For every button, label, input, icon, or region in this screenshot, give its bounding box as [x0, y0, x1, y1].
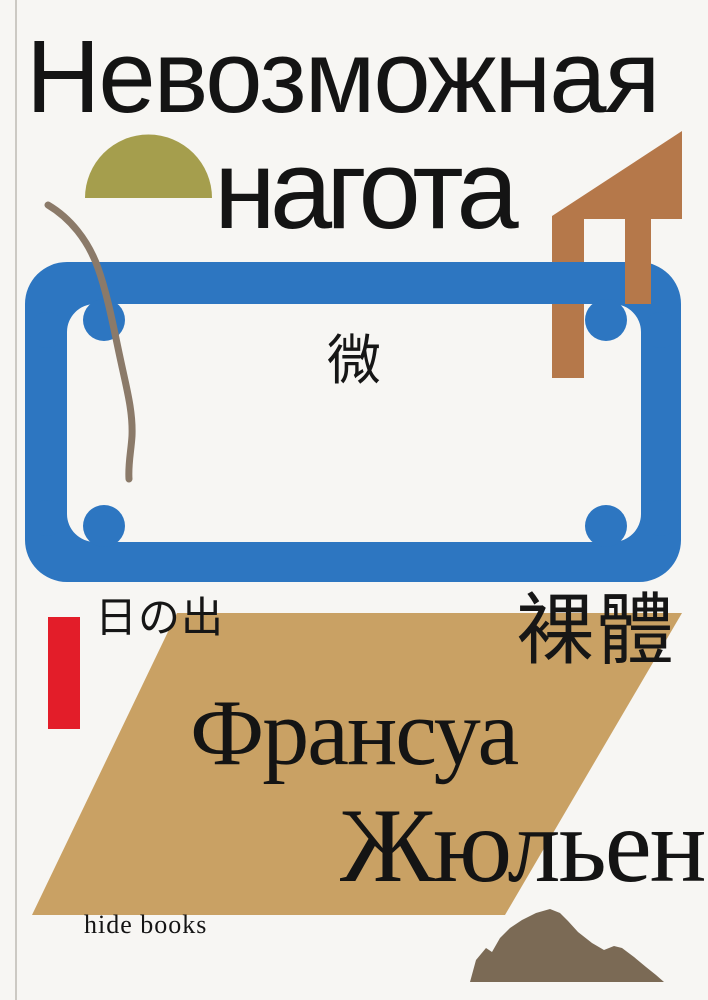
author-first-name: Франсуа — [190, 686, 517, 780]
book-cover: Невозможная нагота 微 日の出 裸體 Франсуа Жюль… — [0, 0, 708, 1000]
mountain-icon — [470, 909, 664, 982]
cjk-character-center: 微 — [327, 334, 381, 388]
title-line1: Невозможная — [26, 25, 658, 128]
cjk-text-sunrise: 日の出 — [95, 597, 224, 639]
author-last-name: Жюльен — [340, 793, 705, 899]
sun-semicircle-icon — [85, 135, 212, 199]
title-line2: нагота — [214, 134, 513, 246]
publisher-logo-text: hide books — [84, 912, 207, 938]
cjk-text-nudity: 裸體 — [516, 592, 676, 670]
house-stem-icon — [625, 214, 651, 304]
red-bar-icon — [48, 617, 80, 729]
